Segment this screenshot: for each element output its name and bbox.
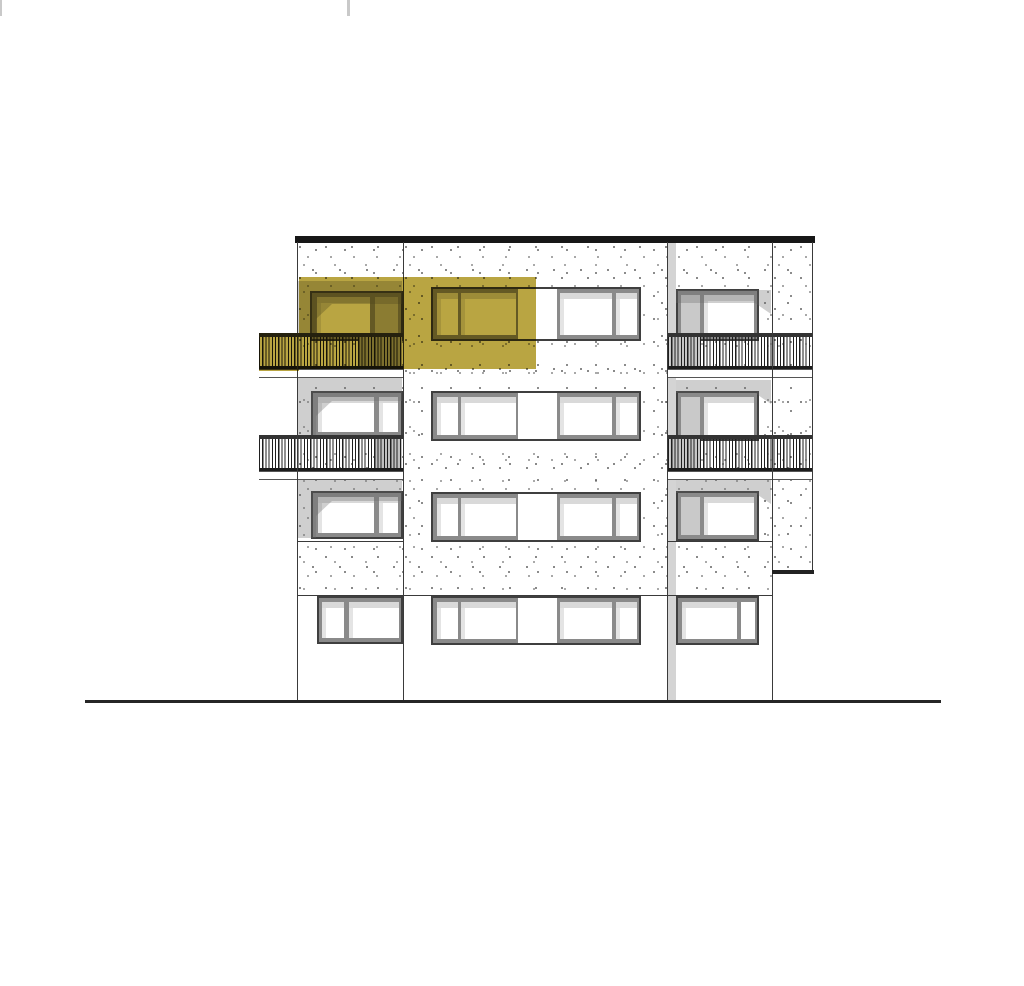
window-floor3-left-pane-2 xyxy=(379,397,398,432)
window-ground-left-pane-1 xyxy=(322,602,344,638)
balcony-railing-floor4-right xyxy=(668,333,813,369)
floor2-sill-line-left xyxy=(297,541,403,542)
window-band-ground-middle-pane-2 xyxy=(461,602,516,639)
floor2-sill-line-right xyxy=(668,541,772,542)
window-ground-right-pane-1 xyxy=(682,602,737,639)
balcony-railing-floor3-right xyxy=(668,435,813,471)
window-band-floor3-middle-pane-4 xyxy=(560,397,612,435)
window-band-floor2-middle-pane-5 xyxy=(616,498,637,536)
window-balcony-floor2-right-pane-1 xyxy=(681,497,700,535)
window-band-floor3-middle-pane-1 xyxy=(437,397,458,435)
window-band-floor4-middle-pane-5 xyxy=(616,293,637,335)
ground-line xyxy=(85,700,941,703)
window-band-ground-middle-pane-1 xyxy=(437,602,458,639)
elevation-drawing-canvas xyxy=(0,0,1024,986)
facade-edge-right-wing xyxy=(812,242,813,572)
window-band-floor2-middle-pane-2 xyxy=(461,498,516,536)
balcony-slab-floor3-right xyxy=(668,471,813,480)
balcony-railing-floor3-left xyxy=(259,435,403,471)
window-band-floor3-middle-pane-5 xyxy=(616,397,637,435)
selected-unit-highlight-main xyxy=(299,277,536,369)
window-balcony-floor3-right-pane-1 xyxy=(681,397,700,435)
window-band-ground-middle-pane-4 xyxy=(560,602,612,639)
window-ground-left-pane-2 xyxy=(349,602,399,638)
window-ground-right-pane-2 xyxy=(741,602,755,639)
ground-floor-lintel-line xyxy=(297,595,772,596)
right-wing-bottom-edge xyxy=(772,570,814,574)
window-ground-left xyxy=(317,596,403,644)
page-tick-mid xyxy=(347,0,350,16)
window-band-ground-middle-pane-5 xyxy=(616,602,637,639)
window-band-ground-middle xyxy=(431,596,641,645)
window-balcony-floor2-right-pane-2 xyxy=(704,497,754,535)
wall-right-wing xyxy=(772,243,812,570)
window-band-floor3-middle-pane-3 xyxy=(518,393,557,439)
window-band-floor3-middle-pane-2 xyxy=(461,397,516,435)
window-ground-right xyxy=(676,596,759,645)
window-band-floor2-middle-pane-4 xyxy=(560,498,612,536)
window-band-floor3-middle xyxy=(431,391,641,441)
balcony-slab-floor3-left xyxy=(259,471,403,480)
window-balcony-floor3-right-pane-2 xyxy=(704,397,754,435)
window-band-floor2-middle-pane-1 xyxy=(437,498,458,536)
window-band-ground-middle-pane-3 xyxy=(518,598,557,643)
window-band-floor4-middle-pane-4 xyxy=(560,293,612,335)
roof-parapet-line xyxy=(295,236,815,243)
window-balcony-floor2-right xyxy=(676,491,759,541)
facade-joint-2 xyxy=(667,242,668,701)
page-tick-left xyxy=(0,0,2,16)
facade-joint-3 xyxy=(772,242,773,701)
facade-edge-left xyxy=(297,242,298,701)
window-band-floor2-middle xyxy=(431,492,641,542)
balcony-slab-floor4-right xyxy=(668,369,813,378)
window-band-floor2-middle-pane-3 xyxy=(518,494,557,540)
window-floor2-left-pane-2 xyxy=(379,497,398,533)
window-balcony-floor3-right xyxy=(676,391,759,441)
selected-unit-highlight-railing xyxy=(259,333,299,371)
